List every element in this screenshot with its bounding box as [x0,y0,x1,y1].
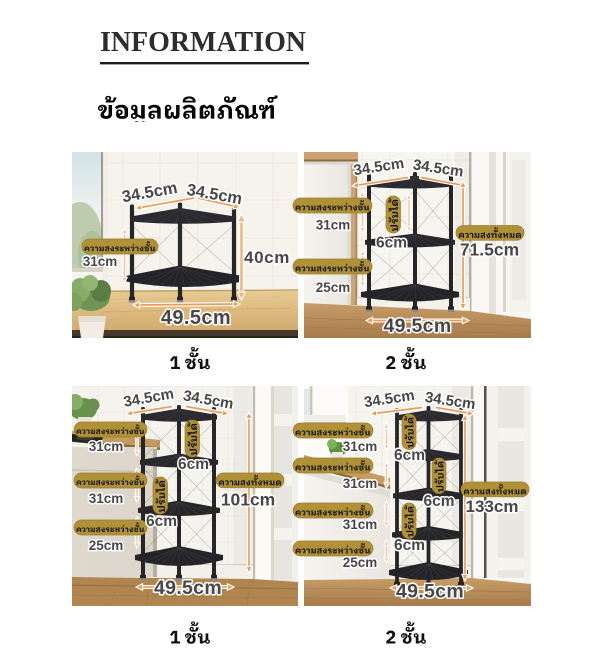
svg-text:25cm: 25cm [343,555,378,570]
svg-text:31cm: 31cm [343,439,378,454]
svg-text:25cm: 25cm [316,280,351,295]
svg-text:40cm: 40cm [244,248,290,267]
svg-text:6cm: 6cm [376,235,407,252]
svg-text:6cm: 6cm [394,537,425,554]
svg-text:6cm: 6cm [394,447,425,464]
svg-text:49.5cm: 49.5cm [161,307,231,329]
svg-text:31cm: 31cm [89,491,124,506]
svg-text:49.5cm: 49.5cm [384,315,452,337]
svg-text:INFORMATION: INFORMATION [100,27,306,58]
svg-text:31cm: 31cm [316,218,351,233]
svg-text:25cm: 25cm [89,538,124,553]
svg-text:31cm: 31cm [343,517,378,532]
svg-text:101cm: 101cm [221,490,276,510]
svg-text:6cm: 6cm [423,493,454,510]
svg-text:49.5cm: 49.5cm [154,577,222,599]
svg-text:49.5cm: 49.5cm [396,581,464,603]
svg-text:133cm: 133cm [466,497,519,516]
svg-text:71.5cm: 71.5cm [460,240,519,260]
svg-text:6cm: 6cm [178,456,209,473]
svg-text:6cm: 6cm [146,513,177,530]
svg-text:31cm: 31cm [343,476,378,491]
svg-text:31cm: 31cm [89,439,124,454]
svg-text:31cm: 31cm [83,254,118,269]
